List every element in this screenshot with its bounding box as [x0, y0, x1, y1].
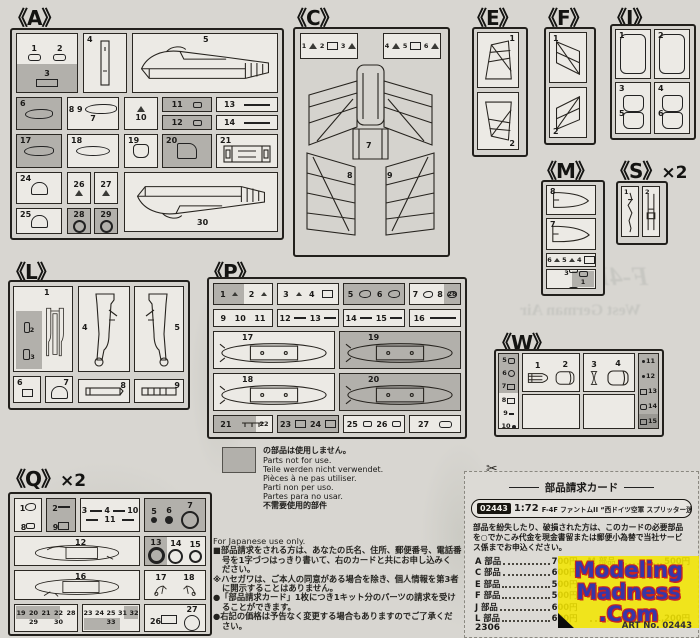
part-icon [363, 421, 372, 427]
part-icon [623, 95, 644, 112]
sprue-panel-f: 1 2 [544, 27, 596, 145]
parts-box: 9 [134, 379, 184, 403]
parts-box-unused: 20 [162, 134, 212, 168]
part-num: 5 [562, 256, 567, 265]
part-icon [24, 146, 54, 156]
parts-box: 6 [13, 376, 41, 403]
parts-box: 1 [621, 186, 639, 237]
part-icon [392, 43, 400, 49]
parts-box: 7 [546, 218, 596, 250]
parts-box: 7 [45, 376, 73, 403]
part-icon [431, 43, 439, 49]
pinch-part-drawing [588, 370, 600, 386]
part-num: 3 [44, 69, 50, 78]
part-num: 29 [100, 210, 111, 219]
part-num: 17 [20, 136, 31, 145]
parts-box: 25 [16, 208, 62, 234]
part-icon [184, 615, 200, 631]
sprue-label-s: 《S》×2 [610, 155, 687, 184]
part-num: 10 [501, 420, 510, 429]
parts-box [583, 394, 635, 429]
part-num: 3 [82, 506, 88, 515]
part-num: 23 [83, 609, 92, 618]
price-label: C 部品 [475, 566, 501, 578]
japanese-note: For Japanese use only. ■部品請求をされる方は、あなたの氏… [213, 537, 465, 631]
part-num: 3 [283, 290, 289, 299]
part-num: 3 [30, 353, 35, 361]
part-icon [508, 370, 515, 377]
part-num: 4 [309, 290, 315, 299]
note-line: ●右記の価格は予告なく変更する場合もありますのでご了承くだ [213, 612, 465, 621]
parts-box: 8 9 7 [67, 97, 119, 130]
part-num: 28 [66, 609, 75, 618]
shaded-area: 2 3 [16, 311, 42, 369]
parts-box: 1 2 [522, 353, 580, 392]
part-num: 1 [553, 34, 559, 43]
parts-box: 12 13 [277, 309, 339, 327]
part-num: 2 [320, 42, 325, 51]
part-num: 18 [183, 573, 194, 582]
part-num: 8 [437, 290, 443, 299]
part-num: 13 [648, 384, 657, 399]
part-num: 9 [174, 381, 180, 390]
part-num: 1 [619, 31, 625, 40]
part-num: 25 [106, 609, 115, 618]
part-icon [348, 43, 356, 49]
retractor-drawing [151, 583, 171, 597]
part-icon [232, 292, 238, 296]
price-label: E 部品 [475, 578, 500, 590]
parts-box: 2 [549, 87, 587, 138]
part-num: 12 [75, 538, 86, 547]
drop-tank-drawing [343, 339, 457, 367]
parts-box: 3 4 [277, 283, 339, 305]
logo-corner-mark [558, 613, 574, 628]
nozzle-part-drawing [606, 369, 630, 387]
part-num: 15 [376, 314, 387, 323]
part-num: 8 [120, 381, 126, 390]
part-num: 7 [366, 141, 372, 150]
part-icon [165, 516, 173, 524]
part-icon [327, 42, 338, 50]
part-num: 6 [166, 506, 172, 515]
sprue-label-a: 《A》 [8, 2, 60, 31]
part-num: 19 [128, 136, 139, 145]
door-part-drawing [140, 385, 178, 397]
nozzle-part-drawing [554, 370, 576, 386]
part-num: 9 [221, 314, 227, 323]
part-num: 9 [387, 171, 393, 180]
part-num: 19 [368, 333, 379, 342]
drop-tank-drawing [217, 339, 331, 367]
gear-leg-drawing [84, 290, 124, 368]
part-icon [177, 143, 197, 159]
gear-fork-drawing [41, 295, 69, 369]
part-icon [569, 269, 578, 273]
part-num: 24 [20, 174, 31, 183]
sprue-letter: 《Q》 [6, 467, 60, 491]
parts-box: 18 [213, 373, 335, 411]
parts-box: 16 [409, 309, 461, 327]
part-num: 15 [648, 414, 657, 429]
part-icon [322, 290, 333, 298]
part-icon [410, 42, 421, 50]
part-icon [507, 384, 515, 390]
parts-box: 4 5 6 [383, 33, 441, 59]
part-icon [447, 291, 457, 298]
part-icon [31, 182, 48, 195]
part-icon [36, 79, 58, 87]
part-num: 9 [503, 407, 508, 420]
part-num: 4 [87, 35, 93, 44]
part-num: 3 [619, 84, 625, 93]
part-num: 5 [174, 323, 180, 332]
part-num: 10 [235, 314, 246, 323]
door-part-drawing [84, 385, 124, 397]
rail-part-drawing [240, 419, 266, 429]
part-icon [390, 317, 402, 319]
price-label: J 部品 [475, 601, 498, 613]
part-num: 30 [54, 618, 63, 627]
part-num: 24 [310, 420, 321, 429]
part-num: 18 [71, 136, 82, 145]
part-num: 12 [280, 314, 291, 323]
part-num: 4 [658, 84, 664, 93]
part-num: 6 [377, 290, 383, 299]
price-label: F 部品 [475, 589, 500, 601]
wing-sprue-drawing [297, 61, 444, 249]
parts-box: 1 [549, 32, 587, 83]
fuselage-half-drawing [135, 38, 275, 88]
parts-box: 4 6 [654, 82, 690, 134]
part-icon [294, 317, 306, 319]
parts-box: 21 [216, 134, 278, 168]
part-icon [662, 112, 683, 129]
pylon-drawing [99, 39, 111, 87]
part-icon [584, 256, 595, 264]
bleedthrough-text: West German Air [520, 302, 641, 320]
strut-drawing [644, 190, 658, 234]
part-icon [161, 615, 177, 624]
part-num: 5 [348, 290, 354, 299]
part-num: 20 [29, 609, 38, 618]
parts-box: 1 2 3 [13, 286, 73, 372]
part-num: 8 [69, 105, 75, 114]
part-num: 7 [187, 501, 193, 510]
parts-box: 3 4 [583, 353, 635, 392]
parts-box: 1 2 3 [16, 33, 78, 93]
part-num: 14 [170, 539, 181, 548]
part-icon [640, 404, 647, 410]
part-icon [430, 317, 456, 319]
card-code: 2306 [475, 623, 500, 633]
parts-box-unused: 6 [16, 97, 62, 130]
parts-box: 4 [78, 286, 130, 372]
part-num: 1 [535, 361, 541, 370]
sprue-panel-j: 1 2 3 5 4 6 [610, 24, 696, 140]
parts-box: 23 24 25 31 32 33 [82, 604, 140, 632]
price-leader [503, 574, 550, 576]
parts-box-unused: 20 [339, 373, 461, 411]
sprue-label-q: 《Q》×2 [6, 463, 86, 492]
parts-box-unused: 19 [339, 331, 461, 369]
part-icon [25, 109, 53, 119]
kit-number-chip: 02443 [477, 503, 511, 514]
parts-box-unused: 2 9 [46, 498, 76, 532]
logo-line-2: Madness [558, 581, 699, 603]
parts-box: 1 8 [14, 498, 42, 532]
part-num: 21 [220, 136, 231, 145]
parts-box-unused: 21 22 [213, 415, 273, 433]
part-icon [296, 292, 302, 296]
price-leader [500, 609, 550, 611]
part-num: 20 [166, 136, 177, 145]
part-icon [76, 146, 110, 156]
part-num: 25 [347, 420, 358, 429]
part-icon [133, 144, 149, 158]
part-num: 1 [220, 290, 226, 299]
part-icon [662, 95, 683, 112]
notice-fr: Pièces à ne pas utiliser. [263, 475, 357, 483]
part-num: 21 [41, 609, 50, 618]
part-icon [569, 258, 575, 262]
part-icon [53, 54, 66, 61]
sprue-panel-m: 8 7 6 5 4 3 2 1 [541, 180, 605, 296]
part-icon [58, 506, 70, 508]
parts-strip: 5 6 7 8 9 10 [498, 353, 519, 429]
parts-box-unused: 17 [16, 134, 62, 168]
part-num: 14 [224, 118, 235, 127]
part-num: 7 [502, 380, 507, 393]
part-icon [642, 375, 645, 378]
part-num: 5 [151, 507, 157, 516]
parts-box-unused: 23 24 [277, 415, 339, 433]
part-icon [439, 421, 452, 428]
part-num: 7 [90, 114, 96, 123]
parts-box: 9 10 11 [213, 309, 273, 327]
parts-box: 6 5 4 [546, 253, 596, 267]
part-icon [148, 547, 165, 564]
price-leader [503, 563, 549, 565]
parts-box: 26 27 [144, 604, 206, 632]
sprue-panel-l: 1 2 3 4 5 6 7 8 9 [8, 280, 190, 410]
part-icon [359, 290, 371, 298]
title-dash [624, 487, 654, 488]
part-num: 20 [368, 375, 379, 384]
parts-box-unused: 12 [162, 115, 212, 130]
part-icon [512, 425, 516, 429]
part-num: 2 [564, 289, 569, 290]
part-num: 7 [413, 290, 419, 299]
parts-box: 1 2 3 [300, 33, 358, 59]
notice-jp: の部品は使用しません。 [263, 447, 351, 455]
part-num: 1 [31, 44, 37, 53]
fin-drawing [480, 97, 516, 145]
kit-scale: 1:72 [514, 503, 539, 514]
part-num: 12 [172, 118, 183, 127]
part-icon [309, 43, 317, 49]
part-num: 22 [54, 609, 63, 618]
part-icon [388, 290, 400, 298]
part-icon [122, 519, 134, 521]
parts-box: 12 [14, 536, 140, 566]
intake-part-drawing [526, 371, 550, 385]
parts-box: 18 [67, 134, 119, 168]
parts-box-unused: 28 [67, 208, 91, 234]
part-num: 23 [280, 420, 291, 429]
part-num: 11 [646, 354, 655, 369]
part-icon [85, 104, 117, 114]
part-icon [554, 258, 560, 262]
part-num: 31 [118, 609, 127, 618]
part-icon [569, 287, 578, 289]
part-icon [623, 112, 644, 129]
part-icon [193, 120, 202, 126]
parts-box: 27 [94, 172, 118, 204]
part-num: 2 [30, 326, 35, 334]
gear-leg-drawing [139, 290, 179, 368]
part-num: 2 [658, 31, 664, 40]
parts-box: 1 2 [213, 283, 273, 305]
part-num: 13 [224, 100, 235, 109]
part-num: 1 [509, 34, 515, 43]
shaded-area: 5 6 7 [499, 354, 518, 393]
part-num: 10 [135, 113, 146, 122]
parts-box: 19 [124, 134, 158, 168]
parts-box: 17 18 [144, 570, 206, 600]
part-num: 11 [104, 515, 115, 524]
part-num: 30 [197, 218, 208, 227]
parts-box: 19 20 21 22 28 29 30 [14, 604, 78, 632]
sprue-panel-e: 1 2 [472, 27, 528, 157]
part-icon [244, 122, 270, 124]
parts-box-unused: 29 [94, 208, 118, 234]
notice-es: Partes para no usar. [263, 493, 343, 501]
part-icon [73, 220, 86, 233]
cockpit-tub-drawing [221, 143, 273, 165]
part-num: 17 [155, 573, 166, 582]
parts-box: 13 [216, 97, 278, 112]
part-num: 6 [424, 42, 429, 51]
part-num: 14 [346, 314, 357, 323]
part-num: 2 [509, 139, 515, 148]
parts-box: 17 [213, 331, 335, 369]
part-icon [193, 102, 202, 108]
part-icon [181, 511, 199, 529]
parts-box: 14 15 [343, 309, 405, 327]
part-icon [325, 420, 336, 428]
part-icon [100, 220, 113, 233]
notice-it: Parti non per uso. [263, 484, 334, 492]
shaded-area: 3 [17, 64, 77, 92]
part-num: 15 [190, 540, 201, 549]
sprue-panel-c: 1 2 3 4 5 6 7 8 9 [293, 27, 450, 257]
part-num: 11 [172, 100, 183, 109]
parts-box: 10 [124, 97, 158, 130]
parts-box: 5 [132, 33, 278, 93]
part-num: 27 [186, 605, 197, 614]
part-num: 6 [20, 99, 26, 108]
shaded-area: 1 [214, 284, 244, 304]
sprue-panel-a: 1 2 3 4 5 6 8 9 7 10 11 12 13 14 [10, 28, 284, 240]
parts-box: 1 [615, 29, 651, 79]
part-icon [360, 317, 372, 319]
part-icon [58, 522, 69, 530]
part-icon [102, 190, 110, 196]
part-num: 1 [581, 278, 586, 287]
part-icon [75, 190, 83, 196]
part-num: 16 [414, 314, 425, 323]
part-num: 12 [646, 369, 655, 384]
part-icon [579, 271, 588, 277]
part-num: 2 [645, 188, 650, 196]
parts-box: 14 [216, 115, 278, 130]
drop-tank-drawing [217, 381, 331, 409]
card-instructions: 部品を紛失したり、破損された方は、このカードの必要部品を○でかこみ代金を現金書留… [473, 523, 690, 553]
part-num: 19 [16, 609, 25, 618]
sprue-multiplier: ×2 [661, 163, 687, 183]
part-icon [295, 420, 306, 428]
part-icon [137, 106, 145, 112]
part-num: 14 [648, 399, 657, 414]
price-label: A 部品 [475, 555, 501, 567]
part-num: 4 [82, 323, 88, 332]
parts-box: 8 [78, 379, 130, 403]
parts-box: 3 5 [615, 82, 651, 134]
part-icon [640, 419, 647, 425]
part-num: 3 [341, 42, 346, 51]
part-icon [90, 510, 102, 512]
part-icon [423, 291, 433, 298]
part-num: 25 [20, 210, 31, 219]
parts-box: 13 14 15 [144, 536, 206, 566]
part-num: 5 [403, 42, 408, 51]
notice-en: Parts not for use. [263, 457, 331, 465]
part-icon [168, 549, 183, 564]
parts-box: 27 [409, 415, 461, 433]
part-icon [31, 215, 48, 228]
card-title-row: 部品請求カード [465, 480, 698, 495]
part-num: 2 [57, 44, 63, 53]
part-num: 8 [502, 394, 507, 407]
parts-box: 8 [546, 185, 596, 215]
part-icon [640, 389, 647, 395]
part-num: 21 [220, 420, 231, 429]
part-num: 4 [615, 359, 621, 368]
notice-de: Teile werden nicht verwendet. [263, 466, 383, 474]
kit-header: 02443 1:72 F-4F ファントムII “西ドイツ空軍 スプリッター迷彩… [471, 499, 692, 518]
part-icon [25, 503, 36, 511]
part-num: 2 [249, 290, 255, 299]
parts-box: 5 [134, 286, 184, 372]
part-icon [86, 519, 98, 521]
part-icon [113, 510, 125, 512]
parts-box: 2 [654, 29, 690, 79]
sprue-multiplier: ×2 [60, 471, 86, 491]
part-num: 6 [547, 256, 552, 265]
part-num: 16 [75, 572, 86, 581]
sprue-panel-s: 1 2 [616, 181, 668, 245]
part-icon [620, 34, 646, 74]
part-num: 8 [550, 187, 556, 196]
part-num: 4 [104, 506, 110, 515]
title-dash [509, 487, 539, 488]
part-icon [189, 550, 202, 563]
strut-drawing [623, 190, 637, 234]
part-num: 5 [502, 354, 507, 367]
part-icon [244, 104, 270, 106]
part-num: 33 [106, 618, 115, 627]
